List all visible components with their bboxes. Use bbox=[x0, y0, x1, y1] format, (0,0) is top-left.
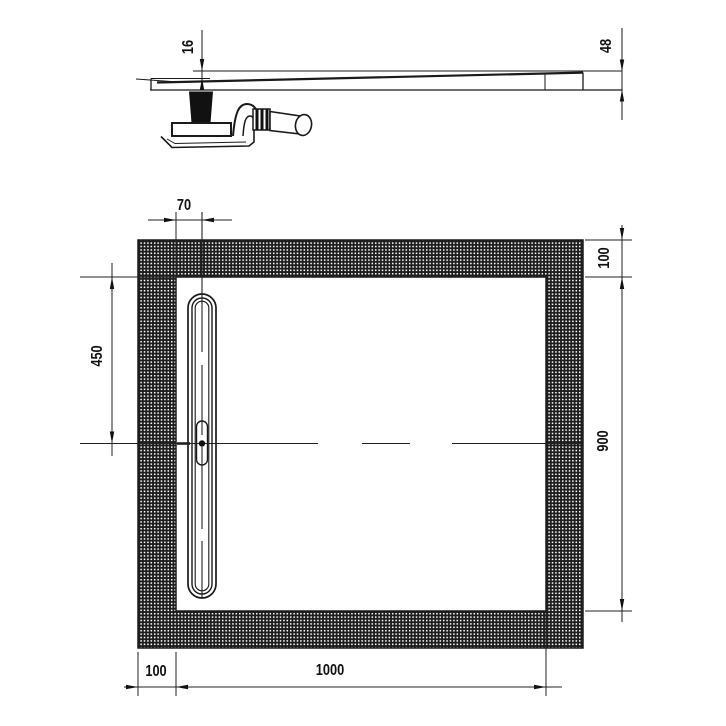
shower-tray-drawing bbox=[0, 0, 726, 726]
drain-spigot bbox=[189, 92, 213, 124]
side-view bbox=[136, 28, 624, 148]
drain-trap bbox=[161, 92, 313, 148]
dim-100-top-and-900 bbox=[585, 225, 632, 622]
dim-label-100-top: 100 bbox=[597, 247, 613, 268]
section-outline bbox=[136, 71, 622, 90]
dim-48 bbox=[620, 28, 624, 120]
trap-flange bbox=[172, 123, 231, 136]
dim-label-900: 900 bbox=[596, 430, 612, 451]
dim-label-16: 16 bbox=[181, 40, 197, 54]
drain-center-mark bbox=[199, 440, 205, 446]
dim-label-100-bottom: 100 bbox=[145, 664, 166, 680]
plan-view bbox=[80, 212, 632, 696]
dim-label-450: 450 bbox=[90, 345, 106, 366]
dim-label-48: 48 bbox=[599, 39, 615, 53]
dim-label-1000: 1000 bbox=[316, 663, 344, 679]
technical-drawing-sheet: 16 48 70 100 450 900 100 1000 bbox=[0, 0, 726, 726]
dim-label-70: 70 bbox=[177, 198, 191, 214]
